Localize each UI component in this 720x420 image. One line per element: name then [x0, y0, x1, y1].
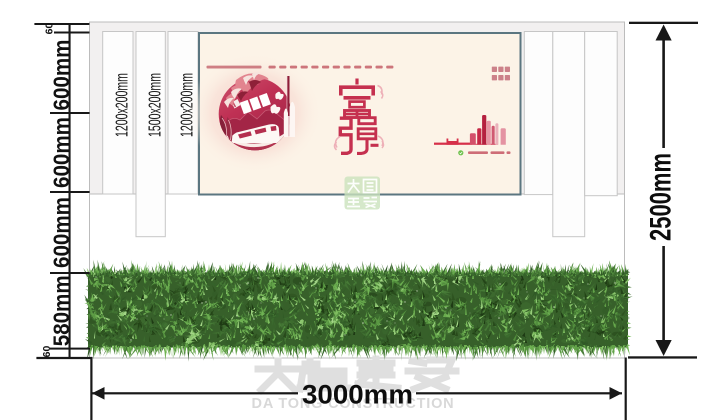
svg-text:60: 60 [41, 346, 53, 358]
svg-text:580mm: 580mm [49, 275, 74, 346]
svg-text:2500mm: 2500mm [645, 153, 678, 241]
svg-text:3000mm: 3000mm [302, 380, 413, 410]
svg-text:600mm: 600mm [49, 117, 74, 188]
svg-text:1500x200mm: 1500x200mm [144, 73, 164, 137]
svg-text:1200x200mm: 1200x200mm [111, 73, 131, 137]
svg-text:600mm: 600mm [49, 197, 74, 268]
svg-text:60: 60 [44, 23, 56, 35]
svg-text:600mm: 600mm [49, 40, 74, 111]
